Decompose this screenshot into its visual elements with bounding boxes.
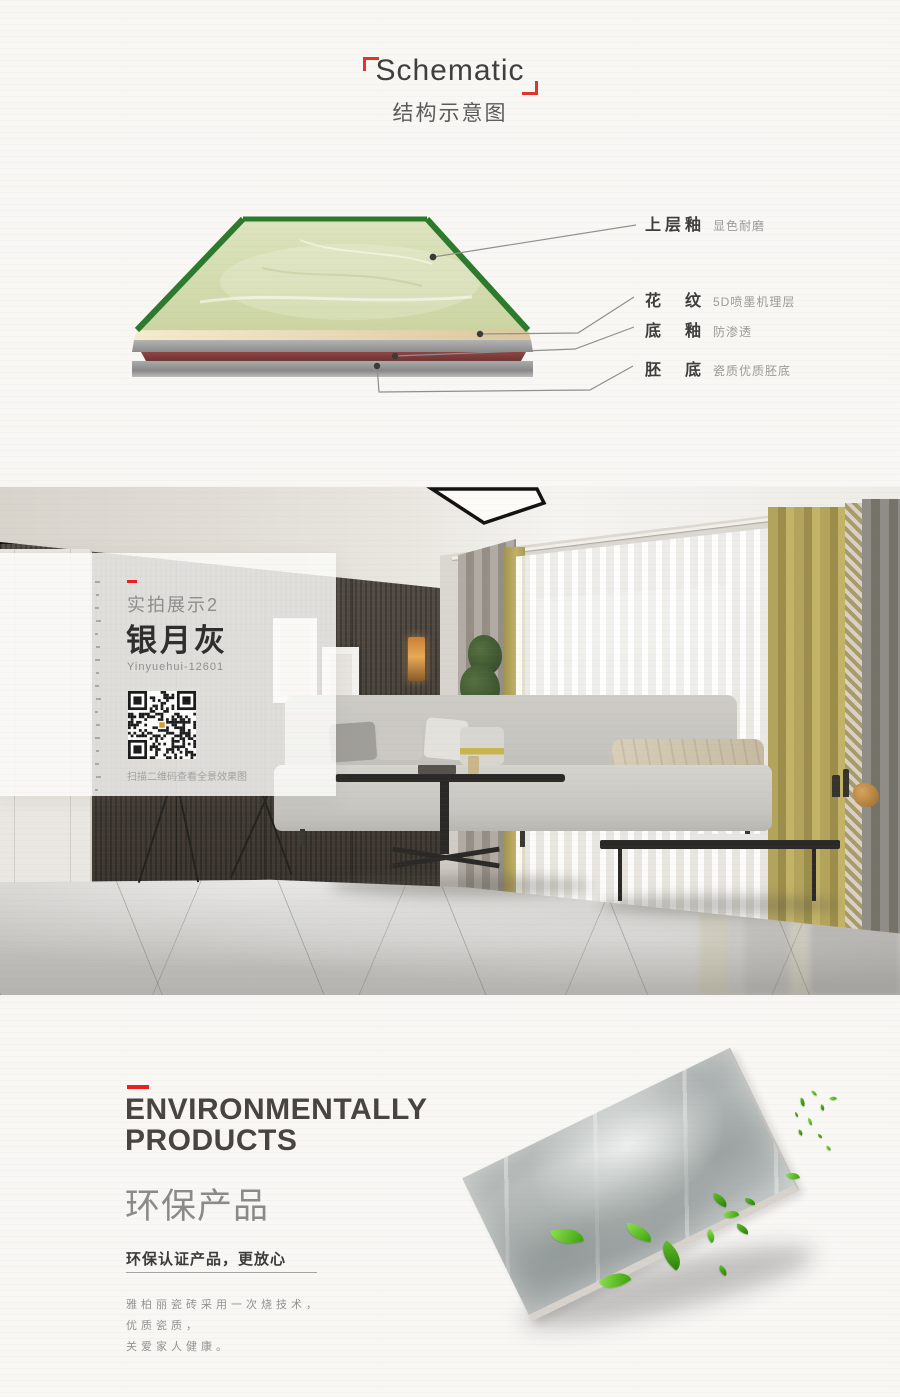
product-name: 银月灰 xyxy=(126,615,228,660)
showcase-tag: 实拍展示2 xyxy=(127,591,219,617)
leaf-icon xyxy=(797,1129,803,1135)
sofa-leg xyxy=(300,829,305,845)
curtain-gray-right xyxy=(862,499,900,967)
leaf-icon xyxy=(811,1089,817,1096)
pillow xyxy=(329,721,378,762)
room-photo: 实拍展示2 银月灰 Yinyuehui-12601 扫描二维码查看全景效果图 xyxy=(0,487,900,995)
coffee-table-top xyxy=(335,774,565,782)
tick-mark xyxy=(96,646,100,648)
product-info-panel: 实拍展示2 银月灰 Yinyuehui-12601 扫描二维码查看全景效果图 xyxy=(0,553,336,796)
qr-caption: 扫描二维码查看全景效果图 xyxy=(127,768,247,783)
red-dash-icon xyxy=(127,1085,149,1089)
qr-code xyxy=(128,691,196,759)
leaf-icon xyxy=(735,1223,750,1234)
floor-shadow xyxy=(600,895,840,915)
decor-bottle xyxy=(832,775,840,797)
tick-mark xyxy=(95,633,98,635)
layer-label-body: 胚 底 瓷质优质胚底 xyxy=(645,356,791,380)
layer-desc: 显色耐磨 xyxy=(713,217,765,234)
coffee-table-column xyxy=(440,782,449,854)
eco-body-line: 优质瓷质， xyxy=(126,1316,321,1337)
layer-desc: 防渗透 xyxy=(713,323,752,340)
leaf-icon xyxy=(808,1118,812,1125)
pillow xyxy=(378,720,422,760)
curtain-yellow-right xyxy=(768,507,848,953)
tick-mark xyxy=(96,620,101,622)
decor-bottle xyxy=(843,769,849,797)
tick-mark xyxy=(95,659,100,661)
pillow-yellow-stripe xyxy=(460,727,504,765)
layer-pattern xyxy=(134,330,531,340)
layer-name: 胚 底 xyxy=(645,356,701,380)
tick-mark xyxy=(96,698,101,700)
layer-name: 上层釉 xyxy=(645,211,701,235)
wall-sconce-light xyxy=(408,637,425,681)
layer-desc: 瓷质优质胚底 xyxy=(713,362,791,379)
tick-mark xyxy=(95,581,100,583)
leaf-icon xyxy=(795,1112,798,1117)
eco-body-line: 关爱家人健康。 xyxy=(126,1337,321,1358)
leaf-icon xyxy=(819,1104,826,1111)
long-table-top xyxy=(600,840,840,849)
layer-body xyxy=(132,361,533,377)
layer-desc: 5D喷墨机理层 xyxy=(713,293,795,310)
product-code: Yinyuehui-12601 xyxy=(127,661,224,673)
table-books xyxy=(418,765,456,774)
tagline-underline xyxy=(126,1272,317,1273)
leaf-icon xyxy=(829,1095,837,1103)
leaf-icon xyxy=(818,1134,822,1138)
deer-figurine xyxy=(853,783,879,807)
layer-name: 底 釉 xyxy=(645,317,701,341)
tick-mark xyxy=(96,776,101,778)
layer-bottom-glaze xyxy=(132,340,533,352)
eco-heading-line2: PRODUCTS xyxy=(125,1125,428,1156)
tick-mark xyxy=(95,737,100,739)
table-candle xyxy=(468,756,479,774)
tile-layers-diagram xyxy=(0,0,900,487)
tick-mark xyxy=(95,607,99,609)
leaf-icon xyxy=(826,1145,832,1150)
layer-label-bottom-glaze: 底 釉 防渗透 xyxy=(645,317,752,341)
tick-mark xyxy=(96,672,99,674)
long-table-leg xyxy=(618,849,622,901)
tick-column xyxy=(95,581,101,791)
layer-label-top-glaze: 上层釉 显色耐磨 xyxy=(645,211,765,235)
long-table-leg xyxy=(812,849,816,901)
eco-heading-line1: ENVIRONMENTALLY xyxy=(125,1094,428,1125)
eco-body-line: 雅柏丽瓷砖采用一次烧技术， xyxy=(126,1295,321,1316)
eco-body-text: 雅柏丽瓷砖采用一次烧技术， 优质瓷质， 关爱家人健康。 xyxy=(126,1295,321,1358)
eco-heading-zh: 环保产品 xyxy=(125,1178,269,1229)
tick-mark xyxy=(96,750,99,752)
layer-name: 花 纹 xyxy=(645,287,701,311)
eco-tagline: 环保认证产品，更放心 xyxy=(126,1248,286,1269)
tick-mark xyxy=(95,685,99,687)
tick-mark xyxy=(95,711,98,713)
sofa-leg xyxy=(520,831,525,847)
tick-mark xyxy=(96,724,100,726)
schematic-section: Schematic 结构示意图 xyxy=(0,0,900,487)
layer-label-pattern: 花 纹 5D喷墨机理层 xyxy=(645,287,795,311)
product-detail-page: Schematic 结构示意图 xyxy=(0,0,900,1397)
red-dash-icon xyxy=(127,580,137,583)
tick-mark xyxy=(95,789,98,791)
tick-mark xyxy=(96,594,99,596)
leaf-icon xyxy=(799,1098,805,1107)
magazines xyxy=(695,834,765,840)
tick-mark xyxy=(95,763,99,765)
eco-heading: ENVIRONMENTALLY PRODUCTS xyxy=(125,1094,428,1156)
floor-shadow xyxy=(330,875,590,897)
eco-section: ENVIRONMENTALLY PRODUCTS 环保产品 环保认证产品，更放心… xyxy=(0,995,900,1397)
